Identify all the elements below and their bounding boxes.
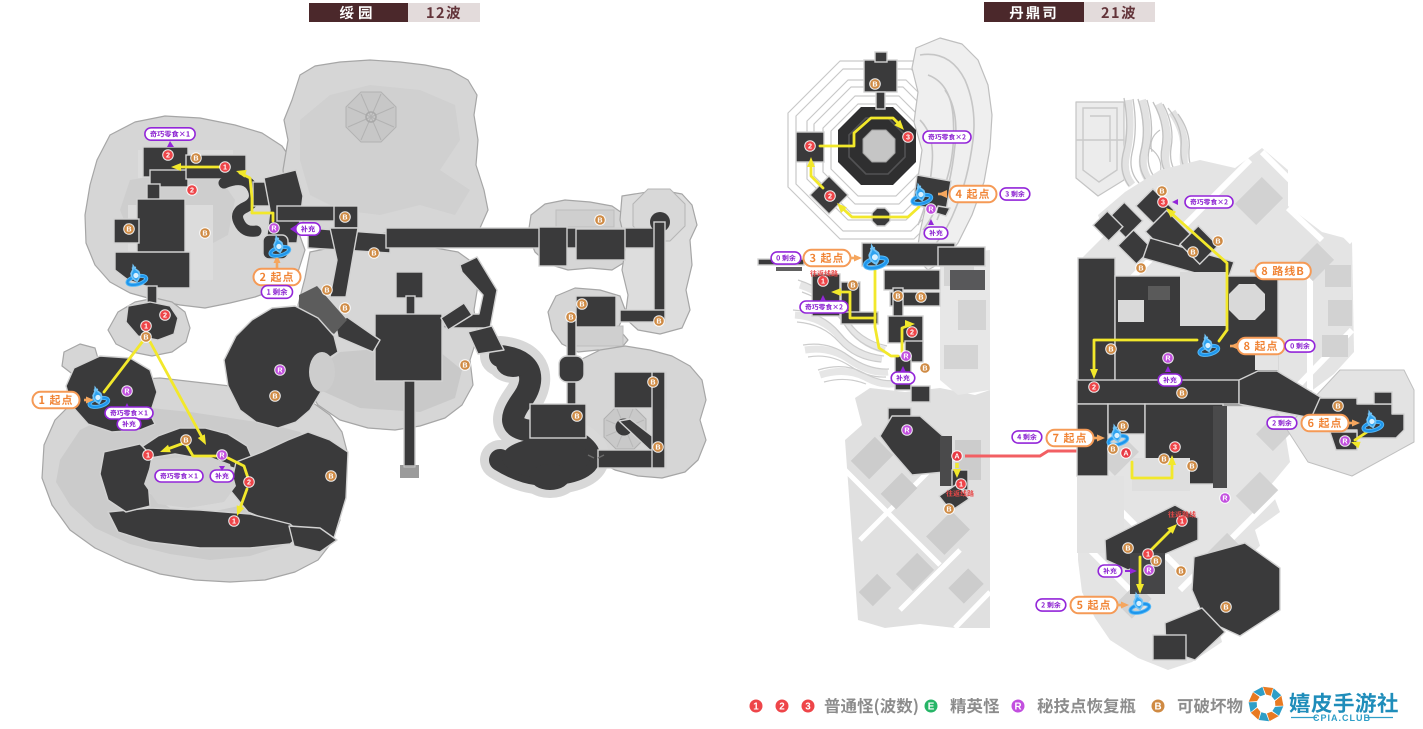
- svg-text:B: B: [579, 300, 584, 309]
- svg-text:E: E: [928, 702, 935, 713]
- svg-text:B: B: [656, 317, 661, 326]
- svg-text:R: R: [277, 366, 283, 375]
- svg-text:2: 2: [247, 478, 251, 487]
- svg-text:R: R: [124, 387, 130, 396]
- svg-text:3: 3: [805, 702, 811, 713]
- svg-text:A: A: [1123, 449, 1128, 458]
- svg-text:2: 2: [828, 192, 832, 201]
- svg-text:B: B: [1125, 544, 1130, 553]
- svg-text:B: B: [462, 361, 467, 370]
- svg-text:B: B: [328, 472, 333, 481]
- svg-text:B: B: [342, 304, 347, 313]
- svg-text:R: R: [1014, 702, 1021, 713]
- svg-text:1: 1: [1146, 550, 1150, 559]
- svg-text:B: B: [371, 249, 376, 258]
- svg-text:1: 1: [959, 480, 963, 489]
- svg-text:2: 2: [166, 151, 170, 160]
- svg-text:B: B: [1154, 702, 1161, 713]
- svg-text:2: 2: [779, 702, 785, 713]
- svg-text:2: 2: [808, 142, 812, 151]
- svg-text:1: 1: [223, 163, 227, 172]
- svg-text:B: B: [650, 378, 655, 387]
- svg-text:B: B: [568, 313, 573, 322]
- svg-text:R: R: [1165, 354, 1171, 363]
- svg-text:B: B: [895, 292, 900, 301]
- svg-text:2: 2: [1092, 383, 1096, 392]
- svg-text:CPIA.CLUB: CPIA.CLUB: [1313, 713, 1371, 723]
- svg-text:1: 1: [144, 322, 148, 331]
- svg-text:B: B: [850, 281, 855, 290]
- svg-text:R: R: [903, 352, 909, 361]
- svg-text:B: B: [918, 293, 923, 302]
- svg-text:1: 1: [753, 702, 759, 713]
- svg-text:2: 2: [163, 311, 167, 320]
- svg-text:B: B: [324, 286, 329, 295]
- svg-text:1: 1: [821, 277, 825, 286]
- svg-text:B: B: [597, 216, 602, 225]
- svg-text:B: B: [143, 333, 148, 342]
- svg-text:B: B: [655, 443, 660, 452]
- svg-text:3: 3: [1173, 443, 1177, 452]
- svg-text:R: R: [1146, 566, 1152, 575]
- svg-text:B: B: [1138, 264, 1143, 273]
- svg-text:2: 2: [190, 186, 194, 195]
- svg-text:1: 1: [146, 451, 150, 460]
- svg-text:R: R: [1222, 494, 1228, 503]
- svg-text:B: B: [202, 229, 207, 238]
- svg-text:B: B: [1215, 237, 1220, 246]
- svg-text:B: B: [1108, 345, 1113, 354]
- svg-text:R: R: [1342, 437, 1348, 446]
- svg-text:R: R: [271, 224, 277, 233]
- svg-text:B: B: [126, 225, 131, 234]
- svg-text:B: B: [1189, 462, 1194, 471]
- svg-text:3: 3: [1161, 198, 1165, 207]
- svg-text:B: B: [183, 436, 188, 445]
- svg-text:B: B: [342, 213, 347, 222]
- svg-text:B: B: [1178, 567, 1183, 576]
- svg-text:B: B: [946, 505, 951, 514]
- svg-text:B: B: [1335, 402, 1340, 411]
- svg-text:B: B: [1153, 557, 1158, 566]
- svg-text:R: R: [219, 451, 225, 460]
- svg-text:B: B: [872, 80, 877, 89]
- svg-text:B: B: [574, 412, 579, 421]
- svg-text:A: A: [954, 452, 959, 461]
- svg-text:B: B: [1179, 389, 1184, 398]
- svg-text:B: B: [272, 392, 277, 401]
- svg-text:B: B: [1110, 445, 1115, 454]
- svg-text:2: 2: [910, 328, 914, 337]
- svg-text:B: B: [193, 154, 198, 163]
- svg-text:R: R: [928, 205, 934, 214]
- svg-text:B: B: [1161, 455, 1166, 464]
- svg-text:B: B: [1159, 187, 1164, 196]
- svg-text:1: 1: [1180, 517, 1184, 526]
- svg-text:B: B: [1120, 422, 1125, 431]
- svg-text:B: B: [922, 364, 927, 373]
- svg-text:R: R: [904, 426, 910, 435]
- svg-text:B: B: [1190, 248, 1195, 257]
- svg-text:1: 1: [232, 517, 236, 526]
- svg-text:B: B: [1223, 603, 1228, 612]
- svg-text:3: 3: [906, 133, 910, 142]
